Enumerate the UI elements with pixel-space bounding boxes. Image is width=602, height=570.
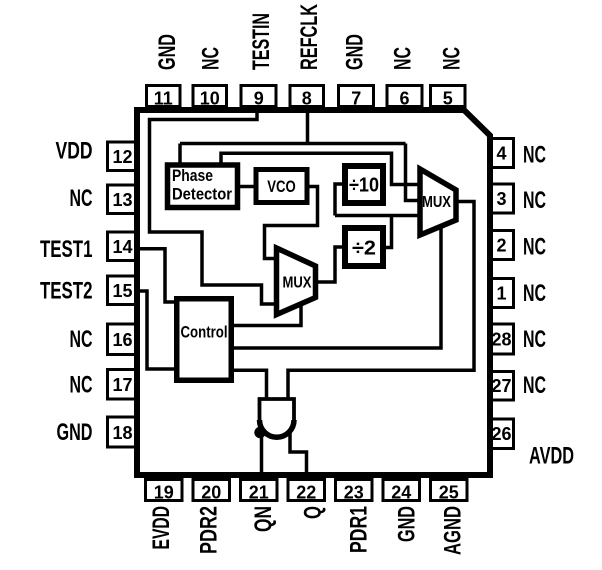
svg-text:28: 28 — [491, 330, 511, 350]
svg-text:QN: QN — [250, 506, 277, 532]
svg-text:10: 10 — [200, 89, 220, 109]
svg-text:4: 4 — [496, 144, 506, 164]
svg-text:22: 22 — [296, 483, 316, 503]
svg-text:8: 8 — [302, 89, 312, 109]
svg-text:TEST2: TEST2 — [40, 277, 93, 304]
svg-text:÷10: ÷10 — [349, 175, 379, 197]
svg-text:NC: NC — [70, 372, 93, 399]
svg-text:Detector: Detector — [172, 186, 233, 204]
svg-text:18: 18 — [112, 423, 132, 443]
svg-text:NC: NC — [70, 326, 93, 353]
svg-text:23: 23 — [344, 483, 364, 503]
svg-text:7: 7 — [351, 89, 361, 109]
svg-text:2: 2 — [496, 236, 506, 256]
svg-text:12: 12 — [112, 147, 132, 167]
svg-text:AGND: AGND — [440, 506, 467, 555]
svg-text:19: 19 — [154, 483, 174, 503]
svg-text:1: 1 — [496, 284, 506, 304]
svg-text:NC: NC — [523, 326, 546, 353]
svg-text:13: 13 — [112, 190, 132, 210]
svg-text:÷2: ÷2 — [352, 238, 376, 260]
svg-text:GND: GND — [394, 506, 421, 542]
svg-text:Control: Control — [181, 324, 228, 342]
svg-text:16: 16 — [112, 330, 132, 350]
svg-text:NC: NC — [523, 372, 546, 399]
svg-text:MUX: MUX — [422, 194, 452, 211]
svg-text:NC: NC — [70, 185, 93, 212]
svg-text:NC: NC — [523, 234, 546, 261]
svg-text:11: 11 — [154, 89, 173, 109]
svg-text:20: 20 — [201, 483, 221, 503]
svg-text:3: 3 — [496, 189, 506, 209]
svg-text:NC: NC — [523, 187, 546, 214]
svg-text:NC: NC — [523, 142, 546, 169]
svg-text:6: 6 — [399, 89, 409, 109]
svg-text:EVDD: EVDD — [148, 506, 175, 550]
svg-text:TEST1: TEST1 — [40, 236, 93, 263]
svg-text:15: 15 — [112, 281, 132, 301]
svg-text:VDD: VDD — [56, 138, 93, 165]
svg-text:21: 21 — [249, 483, 269, 503]
svg-text:NC: NC — [523, 280, 546, 307]
svg-text:VCO: VCO — [267, 178, 296, 196]
svg-text:24: 24 — [391, 483, 411, 503]
svg-text:Q: Q — [300, 506, 327, 519]
svg-text:Phase: Phase — [172, 167, 213, 185]
svg-text:14: 14 — [112, 237, 132, 257]
svg-text:GND: GND — [154, 34, 181, 70]
svg-text:REFCLK: REFCLK — [296, 4, 323, 70]
svg-text:GND: GND — [342, 34, 369, 70]
svg-text:MUX: MUX — [283, 275, 313, 292]
svg-text:27: 27 — [491, 376, 511, 396]
svg-text:5: 5 — [443, 89, 453, 109]
svg-text:9: 9 — [254, 89, 264, 109]
svg-text:TESTIN: TESTIN — [248, 13, 275, 70]
svg-text:26: 26 — [491, 424, 511, 444]
svg-text:PDR2: PDR2 — [196, 506, 223, 554]
svg-text:NC: NC — [390, 47, 417, 70]
svg-text:NC: NC — [439, 47, 466, 70]
svg-text:GND: GND — [57, 419, 93, 446]
svg-text:17: 17 — [112, 375, 132, 395]
svg-text:NC: NC — [198, 47, 225, 70]
svg-text:25: 25 — [439, 483, 459, 503]
svg-text:PDR1: PDR1 — [346, 506, 373, 553]
svg-text:AVDD: AVDD — [529, 443, 574, 470]
